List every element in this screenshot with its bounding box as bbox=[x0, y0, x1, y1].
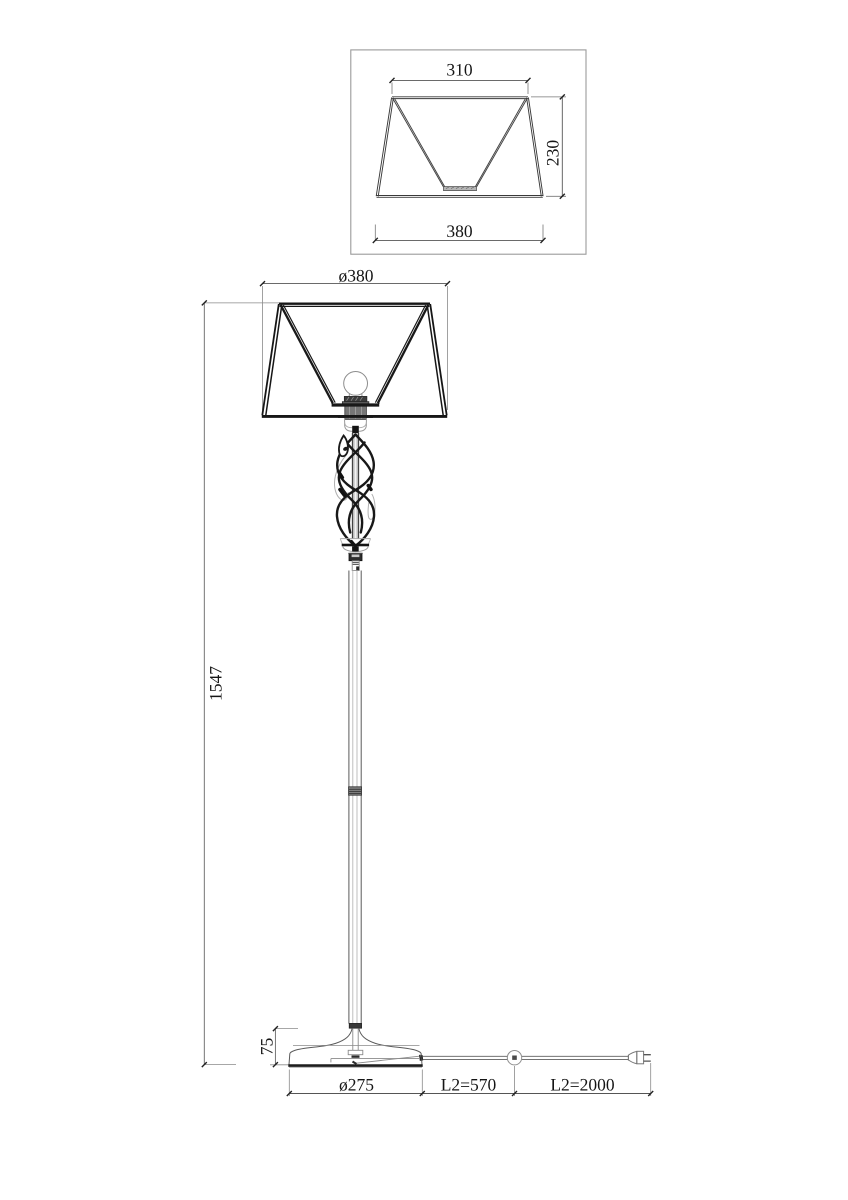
svg-text:310: 310 bbox=[446, 60, 473, 80]
svg-text:L2=570: L2=570 bbox=[441, 1075, 497, 1095]
svg-text:380: 380 bbox=[446, 221, 473, 241]
svg-text:230: 230 bbox=[542, 140, 562, 167]
svg-text:ø380: ø380 bbox=[339, 266, 374, 286]
svg-text:1547: 1547 bbox=[205, 666, 225, 701]
svg-text:ø275: ø275 bbox=[339, 1075, 374, 1095]
svg-text:75: 75 bbox=[256, 1038, 276, 1056]
svg-text:L2=2000: L2=2000 bbox=[550, 1075, 615, 1095]
